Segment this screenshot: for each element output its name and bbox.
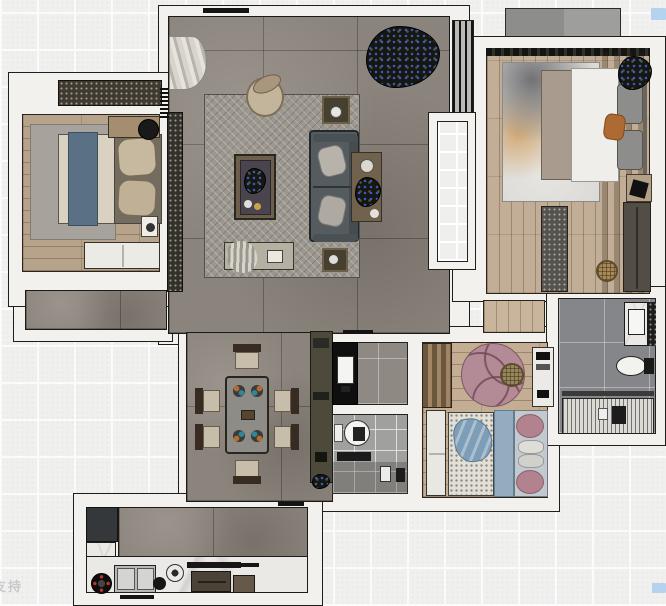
- sink-bathroom-right: [628, 309, 645, 335]
- bed-kids-white-pillow-1: [518, 440, 544, 454]
- magazine-print: [146, 223, 155, 232]
- sofa-arm-bottom: [313, 234, 357, 242]
- shower-slat-floor-right[interactable]: [562, 398, 654, 434]
- coffee-table-living[interactable]: [234, 154, 276, 220]
- sofa-cushion-2: [316, 194, 348, 229]
- toilet-mid-items: [353, 427, 365, 441]
- wardrobe-master[interactable]: [623, 202, 651, 292]
- desk-kids-item-1: [536, 352, 550, 360]
- dining-chair-right-2-back: [291, 424, 299, 450]
- dresser-left-divider: [122, 245, 124, 267]
- wardrobe-master-line: [636, 207, 638, 289]
- bed-left[interactable]: [58, 132, 162, 226]
- nightstand-master-decor: [629, 179, 649, 199]
- door-leaf-kitchen-top[interactable]: [278, 502, 304, 506]
- desk-kids-item-3: [537, 390, 549, 398]
- toilet-mid-bath[interactable]: [344, 420, 370, 446]
- plant-stand-plant: [355, 177, 381, 207]
- kitchen-burner[interactable]: [91, 573, 112, 594]
- slat-panel-kids: [422, 343, 452, 408]
- light-well-void: [428, 112, 476, 270]
- place-setting-1: [233, 385, 245, 397]
- dining-chair-bottom-seat: [235, 460, 259, 477]
- closet-niche-clothes[interactable]: [58, 80, 162, 106]
- bedside-lamp-left[interactable]: [138, 119, 159, 140]
- faucet-mid-bath: [341, 386, 350, 392]
- pouf-rattan-master[interactable]: [596, 260, 618, 282]
- wardrobe-kids[interactable]: [426, 410, 446, 496]
- dining-chair-left-1-seat: [203, 390, 220, 412]
- plant-stand-living[interactable]: [351, 152, 382, 222]
- bed-master-throw: [541, 70, 575, 180]
- dining-chair-right-2-seat: [274, 426, 291, 448]
- magazine-floor-left[interactable]: [141, 216, 158, 237]
- pouf-kids[interactable]: [500, 363, 524, 387]
- door-leaf-midbath[interactable]: [343, 330, 373, 334]
- bed-left-pillow-1: [117, 137, 158, 178]
- dining-table: [225, 376, 269, 454]
- shower-fixture-right[interactable]: [612, 406, 626, 424]
- bed-left-blue-throw: [68, 132, 98, 226]
- bed-kids-white-pillow-2: [518, 454, 544, 468]
- bed-left-pillow-2: [117, 179, 157, 217]
- shower-knob-mid[interactable]: [396, 468, 405, 482]
- bench-master[interactable]: [541, 206, 568, 292]
- dining-chair-left-1-back: [195, 388, 203, 414]
- dining-set[interactable]: [195, 344, 299, 486]
- watermark-text: 支持: [0, 576, 23, 595]
- plant-stand-cup: [360, 159, 374, 173]
- kitchen-sink-basin-1: [117, 568, 135, 590]
- floorplan-canvas[interactable]: 支持: [0, 0, 666, 606]
- door-leaf-entry-top[interactable]: [203, 8, 249, 13]
- kitchen-kettle[interactable]: [153, 577, 166, 590]
- artifact-blue-bottom-right: [652, 583, 666, 593]
- dining-chair-right-1-back: [291, 388, 299, 414]
- place-setting-2: [251, 385, 263, 397]
- vanity-bathroom-right[interactable]: [624, 302, 648, 346]
- bathmat-dark-mid: [337, 452, 371, 461]
- kitchen-fridge[interactable]: [86, 507, 118, 542]
- shower-glass-line-right: [562, 391, 654, 396]
- hall-kids-room-wood: [483, 300, 545, 333]
- wardrobe-kids-line: [429, 453, 445, 455]
- bench-blanket: [225, 239, 259, 275]
- bed-master-headboard: [643, 70, 647, 180]
- dresser-left[interactable]: [84, 242, 160, 269]
- dining-cabinet-tall[interactable]: [310, 331, 333, 483]
- toilet-fittings-right: [644, 358, 654, 374]
- bed-kids[interactable]: [448, 410, 548, 497]
- floor-living-nook: [25, 290, 167, 330]
- desk-kids-item-2: [536, 364, 550, 370]
- bed-kids-pink-pillow-1: [516, 414, 544, 438]
- nightstand-master[interactable]: [626, 174, 652, 202]
- dining-chair-top-seat: [235, 352, 259, 369]
- window-glass-column: [452, 20, 474, 114]
- coffee-table-cup-1: [244, 200, 252, 208]
- floor-kitchen: [118, 507, 308, 558]
- table-centerpiece: [241, 410, 255, 420]
- door-leaf-kitchen-bottom[interactable]: [120, 595, 154, 599]
- bed-kids-pink-pillow-2: [516, 470, 544, 494]
- artifact-blue-top-right: [651, 8, 666, 20]
- dining-cabinet-item-1: [313, 338, 329, 348]
- dining-chair-bottom-back: [233, 476, 261, 484]
- light-well-interior: [437, 121, 468, 262]
- dining-cabinet-item-2: [313, 392, 329, 400]
- dining-chair-top-back: [233, 344, 261, 352]
- dining-chair-left-2-back: [195, 424, 203, 450]
- shower-plate-mid[interactable]: [380, 466, 391, 482]
- shower-caddy-right: [598, 408, 608, 420]
- side-table-top-flower: [330, 106, 342, 118]
- bed-master-pillow-orange: [602, 113, 626, 142]
- kitchen-sink-basin-2: [137, 568, 154, 590]
- kitchen-stove-cabinet[interactable]: [191, 571, 231, 592]
- shelf-dark-bathroom-right: [648, 302, 656, 346]
- place-setting-3: [233, 430, 245, 442]
- bench-book: [267, 250, 283, 263]
- sofa-cushion-1: [316, 143, 348, 178]
- sink-mid-bath[interactable]: [337, 356, 354, 384]
- coffee-table-cup-2: [254, 203, 261, 210]
- toilet-mid-shelf: [334, 424, 343, 442]
- plant-stand-dot: [370, 209, 379, 218]
- side-table-bottom-decor: [329, 255, 338, 264]
- side-table-top[interactable]: [322, 96, 350, 124]
- kitchen-cabinet-2[interactable]: [233, 575, 255, 593]
- armchair-living[interactable]: [246, 77, 284, 117]
- sofa-arm-top: [313, 134, 357, 142]
- kitchen-hood-bar: [187, 562, 241, 568]
- door-hinge-comb: [160, 86, 169, 118]
- bed-kids-side-rail: [494, 410, 514, 497]
- kitchen-pot[interactable]: [166, 564, 184, 582]
- desk-kids[interactable]: [532, 347, 554, 407]
- dining-cabinet-item-3: [315, 452, 327, 462]
- kitchen-stove-handle: [198, 581, 226, 583]
- dining-chair-left-2-seat: [203, 426, 220, 448]
- dining-chair-right-1-seat: [274, 390, 291, 412]
- bench-living[interactable]: [224, 242, 294, 270]
- tv-cabinet-strip[interactable]: [167, 112, 183, 292]
- side-table-bottom[interactable]: [322, 248, 348, 272]
- kitchen-hood-ext: [241, 563, 259, 567]
- kitchen-sink-double[interactable]: [114, 565, 156, 593]
- toilet-bathroom-right[interactable]: [616, 356, 646, 376]
- place-setting-4: [251, 430, 263, 442]
